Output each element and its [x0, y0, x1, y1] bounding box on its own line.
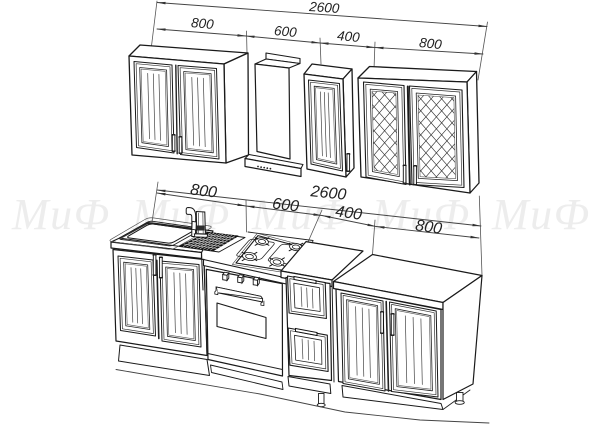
svg-text:2600: 2600	[308, 0, 340, 16]
svg-text:600: 600	[271, 195, 300, 215]
svg-text:МиФ: МиФ	[491, 190, 591, 239]
svg-text:МиФ: МиФ	[11, 190, 111, 239]
svg-text:800: 800	[189, 181, 218, 201]
svg-text:400: 400	[337, 28, 361, 45]
svg-text:800: 800	[418, 35, 442, 52]
svg-text:800: 800	[191, 15, 215, 32]
svg-text:600: 600	[274, 23, 298, 40]
